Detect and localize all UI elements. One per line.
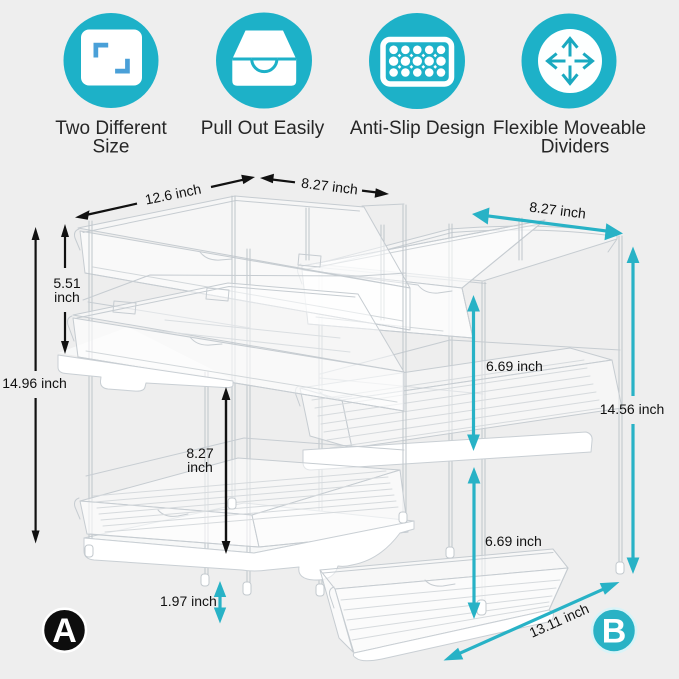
svg-text:14.96 inch: 14.96 inch [2, 375, 67, 391]
svg-text:1.97 inch: 1.97 inch [160, 593, 217, 609]
svg-text:Dividers: Dividers [541, 137, 610, 158]
svg-text:Size: Size [93, 137, 130, 158]
svg-text:14.56 inch: 14.56 inch [600, 401, 665, 417]
svg-text:A: A [52, 612, 77, 650]
svg-text:Anti-Slip Design: Anti-Slip Design [350, 118, 485, 139]
svg-text:6.69 inch: 6.69 inch [486, 358, 543, 374]
svg-text:Pull Out Easily: Pull Out Easily [201, 118, 325, 139]
svg-text:6.69 inch: 6.69 inch [485, 533, 542, 549]
svg-text:B: B [602, 613, 627, 651]
svg-text:inch: inch [54, 289, 80, 305]
svg-text:inch: inch [187, 459, 213, 475]
